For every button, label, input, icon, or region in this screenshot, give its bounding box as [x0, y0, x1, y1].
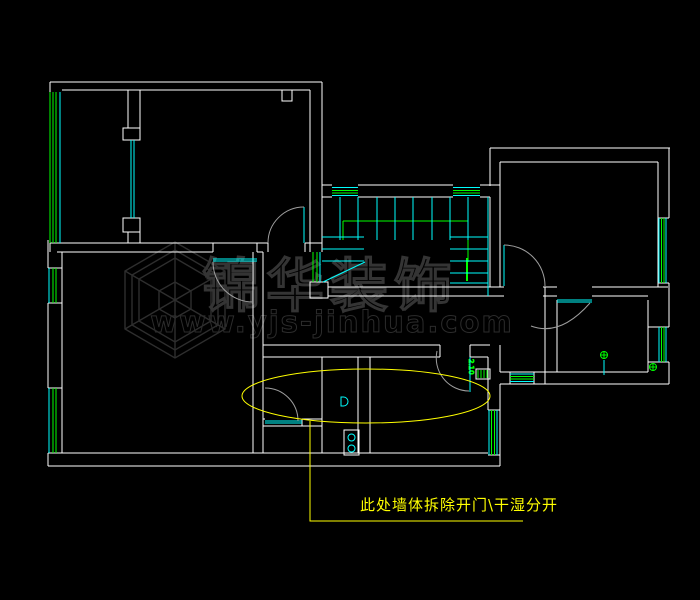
annotation-highlight-ellipse	[242, 369, 490, 423]
floor-drain-icon	[600, 351, 608, 359]
annotation-layer: 此处墙体拆除开门\干湿分开	[242, 369, 558, 521]
floor-drain-icon	[649, 363, 657, 371]
door-arc	[436, 351, 469, 391]
annotation-text: 此处墙体拆除开门\干湿分开	[360, 496, 558, 514]
floor-plan-canvas: 锦华装饰 www.yjs-jinhua.com 2.10	[0, 0, 700, 600]
door-height-label: 2.10	[467, 359, 475, 375]
watermark: 锦华装饰 www.yjs-jinhua.com	[125, 242, 514, 358]
watermark-url-text: www.yjs-jinhua.com	[150, 305, 513, 339]
door-arc	[504, 245, 545, 286]
door-arc	[268, 207, 304, 243]
stove-burners-icon	[348, 434, 355, 452]
floor-plan-drawing: 锦华装饰 www.yjs-jinhua.com 2.10	[0, 0, 700, 600]
door-arc	[531, 303, 590, 329]
toilet-fixture-icon	[341, 397, 348, 406]
